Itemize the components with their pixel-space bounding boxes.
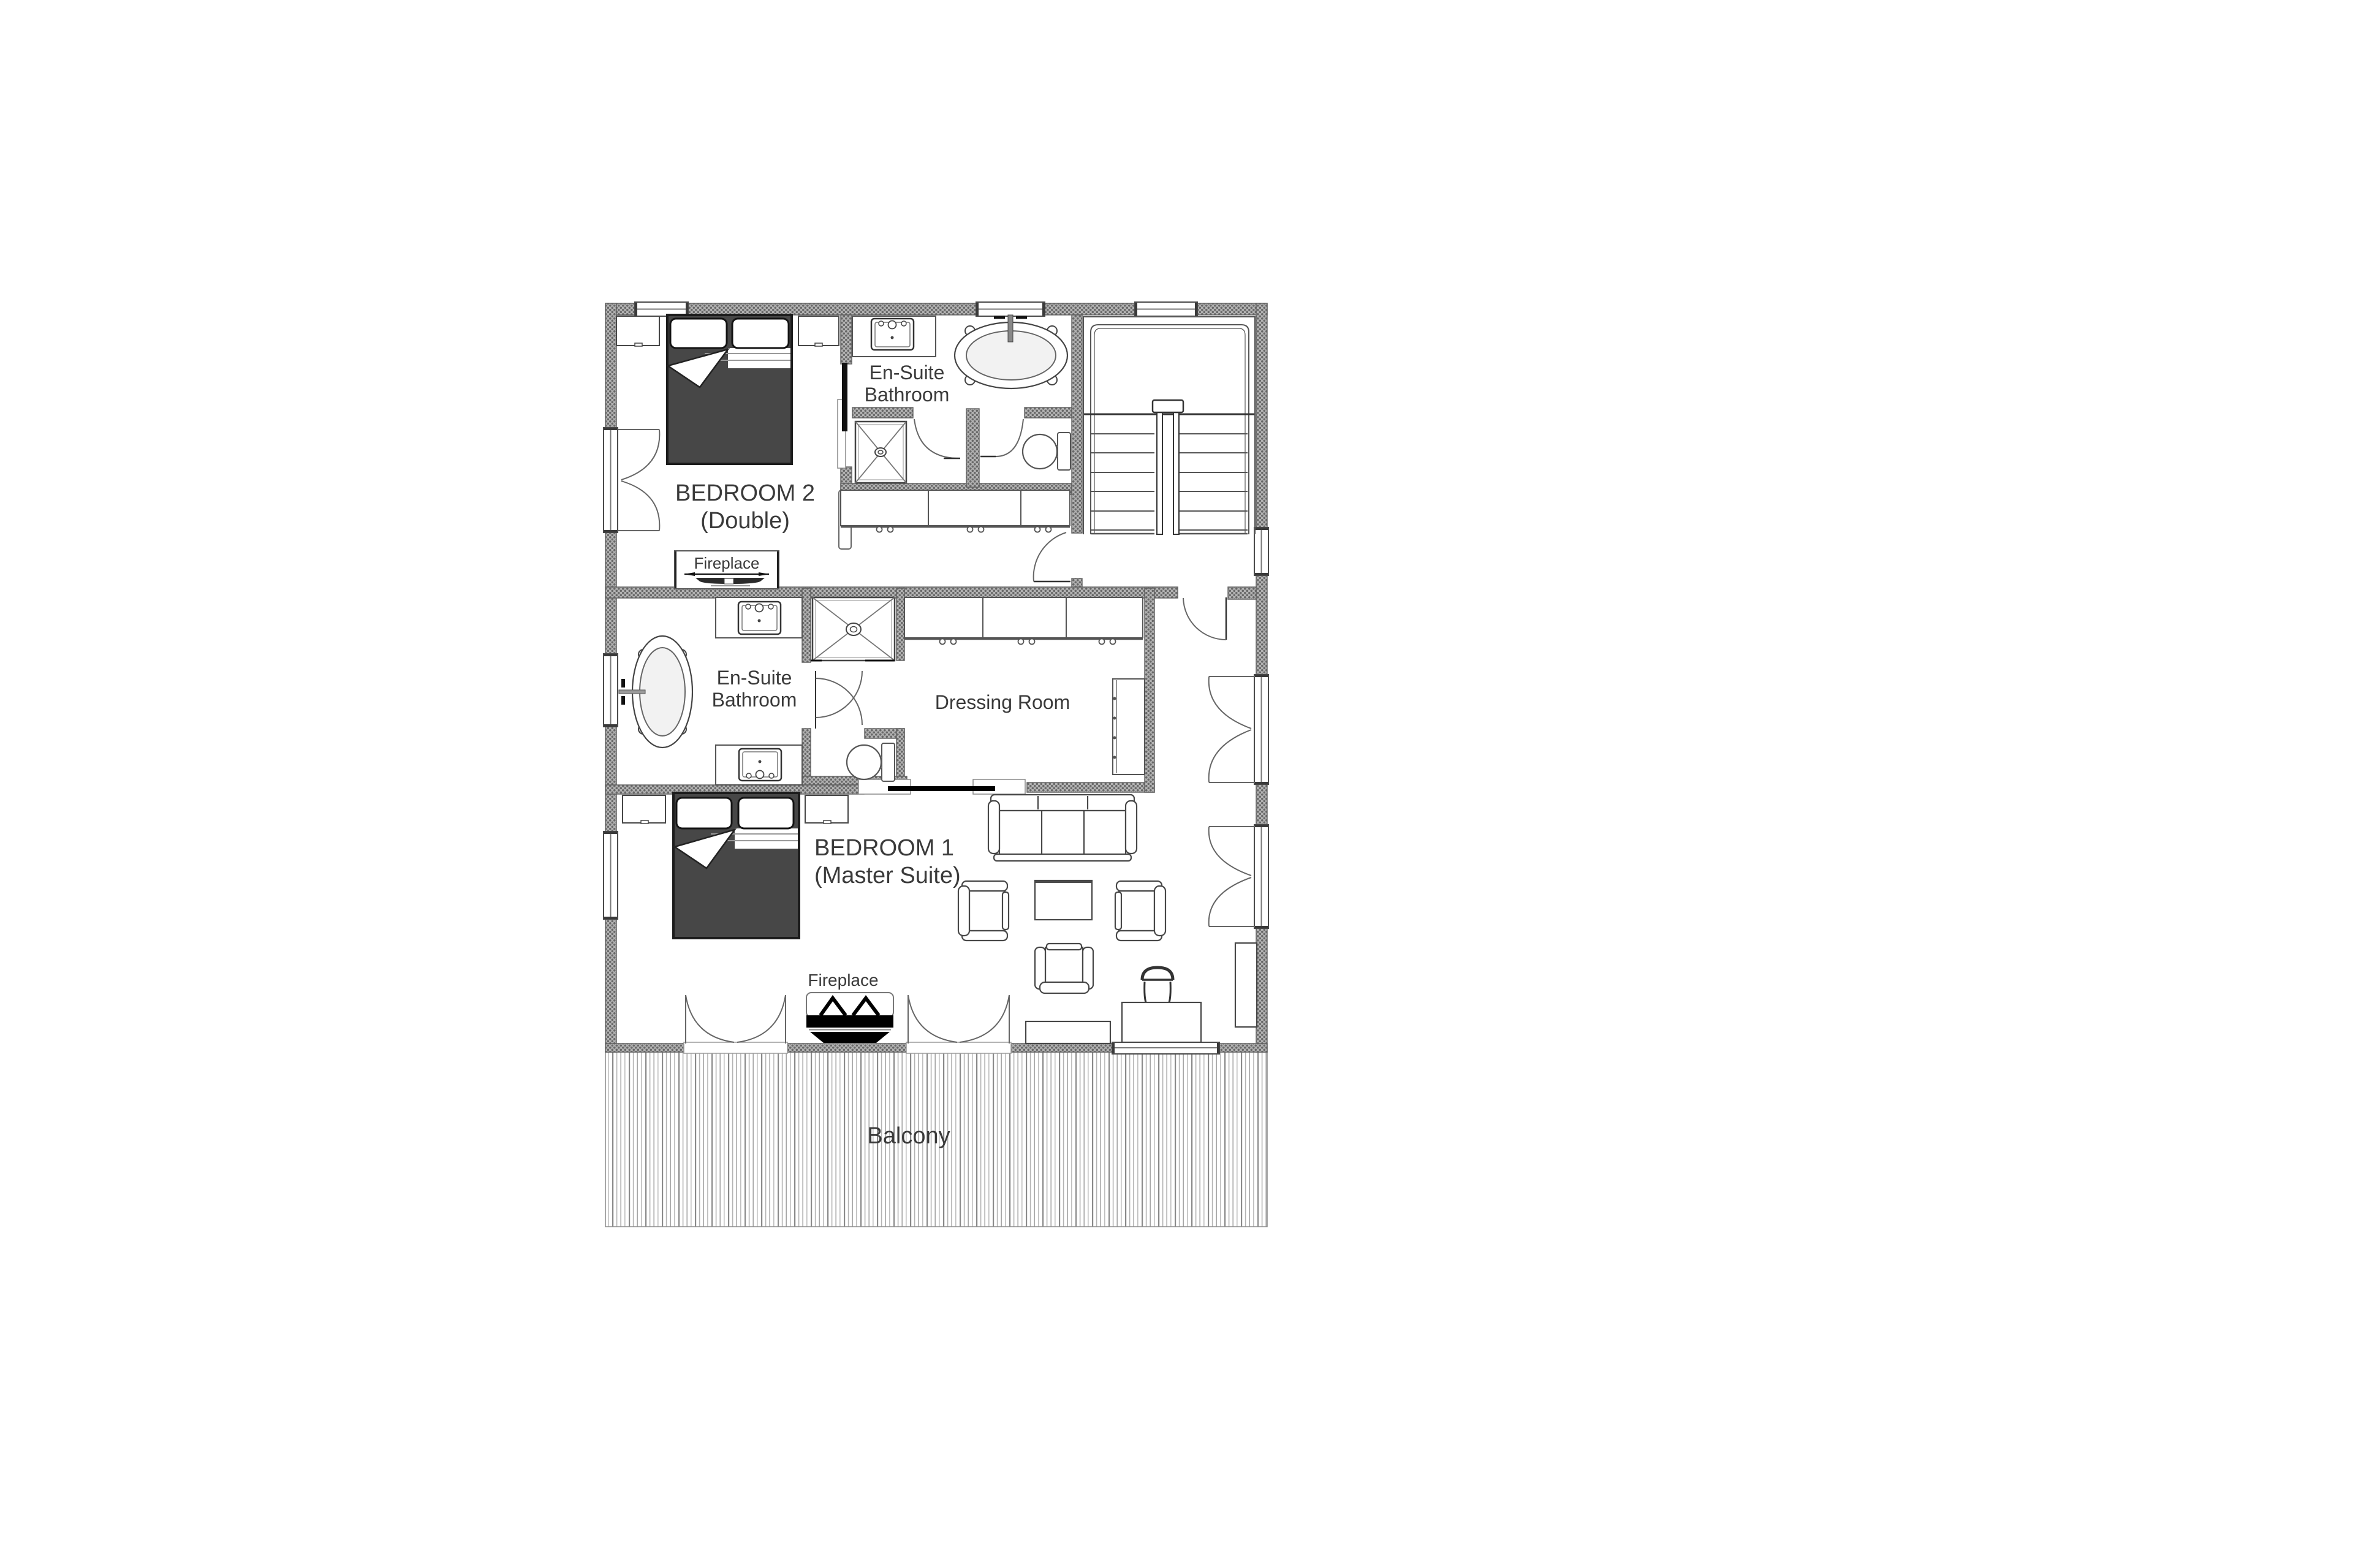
svg-text:Bathroom: Bathroom bbox=[712, 689, 797, 711]
svg-text:BEDROOM 2: BEDROOM 2 bbox=[675, 480, 815, 506]
svg-text:En-Suite: En-Suite bbox=[870, 362, 945, 384]
svg-text:Bathroom: Bathroom bbox=[865, 384, 950, 406]
svg-text:Fireplace: Fireplace bbox=[694, 554, 760, 572]
svg-text:BEDROOM 1: BEDROOM 1 bbox=[814, 835, 954, 861]
svg-text:(Double): (Double) bbox=[700, 508, 790, 534]
svg-text:(Master Suite): (Master Suite) bbox=[814, 863, 961, 888]
svg-text:En-Suite: En-Suite bbox=[717, 667, 792, 689]
svg-text:Dressing Room: Dressing Room bbox=[935, 691, 1070, 713]
svg-text:Balcony: Balcony bbox=[867, 1123, 950, 1149]
svg-text:Fireplace: Fireplace bbox=[808, 971, 878, 990]
